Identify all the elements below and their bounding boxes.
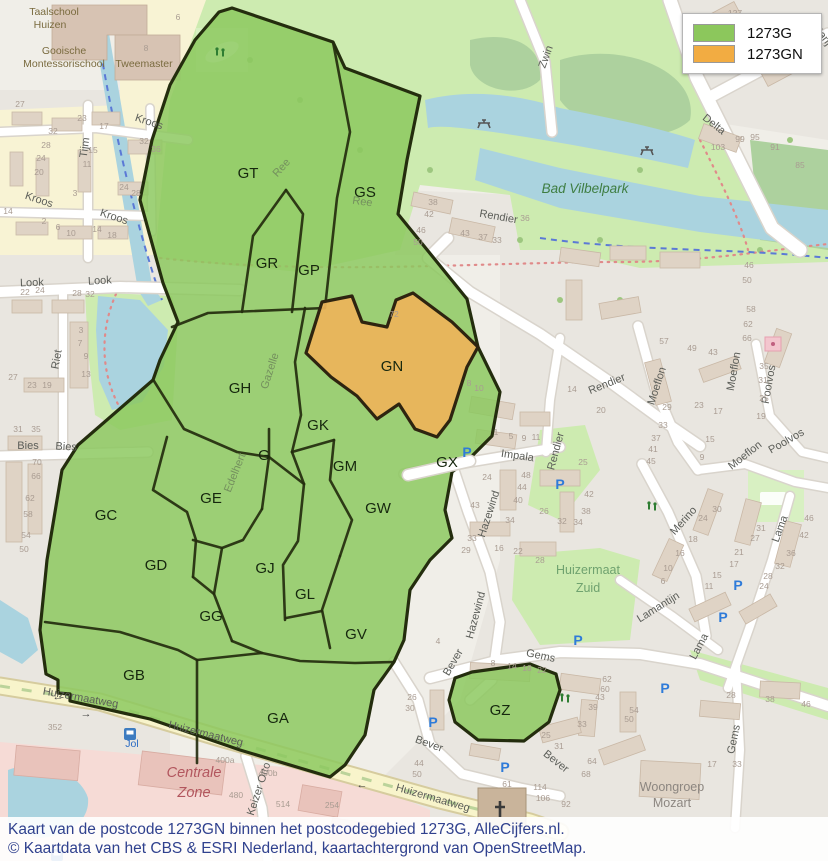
region-label-gh: GH xyxy=(229,380,252,397)
house-number: 9 xyxy=(700,452,705,462)
house-number: 14 xyxy=(567,384,577,394)
house-number: 23 xyxy=(27,380,37,390)
house-number: 28 xyxy=(535,555,545,565)
house-number: 16 xyxy=(494,543,504,553)
house-number: 114 xyxy=(533,782,547,792)
house-number: 22 xyxy=(537,665,547,675)
street-label: Bies xyxy=(17,440,39,452)
house-number: 32 xyxy=(85,289,95,299)
house-number: 33 xyxy=(577,719,587,729)
arrow-left-icon: ← xyxy=(53,691,64,703)
house-number: 39 xyxy=(588,702,598,712)
house-number: 514 xyxy=(276,799,290,809)
street-label: Huizermaat xyxy=(556,563,620,577)
street-label: Montessorischool xyxy=(23,58,105,70)
house-number: 58 xyxy=(746,304,756,314)
street-label: Woongroep xyxy=(640,780,704,794)
house-number: 10 xyxy=(663,563,673,573)
house-number: 29 xyxy=(662,402,672,412)
house-number: 99 xyxy=(735,134,745,144)
caption-line-2: © Kaartdata van het CBS & ESRI Nederland… xyxy=(8,839,820,858)
house-number: 7 xyxy=(78,338,83,348)
house-number: 46 xyxy=(744,260,754,270)
house-number: 254 xyxy=(325,800,339,810)
house-number: 11 xyxy=(705,581,714,591)
house-number: 4 xyxy=(436,636,441,646)
house-number: 92 xyxy=(561,799,571,809)
house-number: 54 xyxy=(21,530,31,540)
region-label-gd: GD xyxy=(145,557,168,574)
house-number: 50 xyxy=(413,237,423,247)
svg-text:→: → xyxy=(81,708,92,720)
house-number: 103 xyxy=(711,142,725,152)
house-number: 16 xyxy=(675,548,685,558)
house-number: 27 xyxy=(8,372,18,382)
street-label: Centrale xyxy=(167,765,222,781)
house-number: 480 xyxy=(229,790,243,800)
house-number: 57 xyxy=(659,336,669,346)
house-number: 50 xyxy=(412,769,422,779)
house-number: 38 xyxy=(765,694,775,704)
house-number: 91 xyxy=(770,142,780,152)
house-number: 34 xyxy=(573,517,583,527)
region-label-gn: GN xyxy=(381,358,404,375)
house-number: 28 xyxy=(131,188,141,198)
street-label: Taalschool xyxy=(29,6,79,18)
house-number: 66 xyxy=(31,471,41,481)
house-number: 27 xyxy=(15,99,25,109)
house-number: 34 xyxy=(505,515,515,525)
region-label-ga: GA xyxy=(267,710,289,727)
region-label-gc: GC xyxy=(95,507,118,524)
house-number: 9 xyxy=(522,433,527,443)
region-label-ge: GE xyxy=(200,490,222,507)
house-number: 58 xyxy=(23,509,33,519)
house-number: 27 xyxy=(750,533,760,543)
house-number: 18 xyxy=(107,230,117,240)
svg-text:←: ← xyxy=(357,779,368,791)
house-number: 31 xyxy=(756,523,766,533)
house-number: 352 xyxy=(48,722,62,732)
house-number: 42 xyxy=(584,489,594,499)
parking-icon: P xyxy=(428,714,437,730)
house-number: 23 xyxy=(694,400,704,410)
house-number: 15 xyxy=(705,434,715,444)
house-number: 28 xyxy=(41,140,51,150)
house-number: 62 xyxy=(602,674,612,684)
house-number: 8 xyxy=(491,658,496,668)
house-number: 24 xyxy=(698,513,708,523)
house-number: 44 xyxy=(517,482,527,492)
parking-icon: P xyxy=(555,476,564,492)
house-number: 46 xyxy=(801,699,811,709)
house-number: 43 xyxy=(708,347,718,357)
house-number: 25 xyxy=(541,730,551,740)
legend-row-1273gn: 1273GN xyxy=(693,45,811,63)
caption-line-1: Kaart van de postcode 1273GN binnen het … xyxy=(8,820,820,839)
region-label-gv: GV xyxy=(345,626,367,643)
house-number: 70 xyxy=(32,457,42,467)
house-number: 30 xyxy=(712,504,722,514)
street-label: Gooische xyxy=(42,45,87,57)
house-number: 21 xyxy=(734,547,744,557)
legend-row-1273g: 1273G xyxy=(693,24,811,42)
house-number: 33 xyxy=(492,235,502,245)
street-label: Mozart xyxy=(653,796,692,810)
house-number: 24 xyxy=(759,581,769,591)
region-label-gw: GW xyxy=(365,500,392,517)
house-number: 33 xyxy=(658,420,668,430)
house-number: 10 xyxy=(66,228,76,238)
street-label: Huizen xyxy=(34,19,67,31)
house-number: 66 xyxy=(742,333,752,343)
region-label-gt: GT xyxy=(238,165,259,182)
house-number: 32 xyxy=(557,516,567,526)
house-number: 35 xyxy=(31,424,41,434)
house-number: 42 xyxy=(799,530,809,540)
house-number: 9 xyxy=(84,351,89,361)
house-number: 46 xyxy=(804,513,814,523)
house-number: 22 xyxy=(513,546,523,556)
sports-court xyxy=(760,492,786,505)
parking-icon: P xyxy=(733,577,742,593)
house-number: 31 xyxy=(554,741,564,751)
house-number: 32 xyxy=(48,126,58,136)
street-label: Tweemaster xyxy=(115,58,173,70)
house-number: 85 xyxy=(795,160,805,170)
arrow-right-icon: → xyxy=(81,708,92,720)
caption: Kaart van de postcode 1273GN binnen het … xyxy=(0,817,828,861)
house-number: 14 xyxy=(507,661,517,671)
house-number: 36 xyxy=(786,548,796,558)
house-number: 50 xyxy=(19,544,29,554)
legend-label-1273g: 1273G xyxy=(747,25,811,42)
region-label-gj: GJ xyxy=(255,560,274,577)
house-number: 68 xyxy=(581,769,591,779)
house-number: 24 xyxy=(482,472,492,482)
house-number: 41 xyxy=(648,444,658,454)
house-number: 61 xyxy=(502,779,512,789)
house-number: 25 xyxy=(578,457,588,467)
house-number: 37 xyxy=(651,433,661,443)
house-number: 33 xyxy=(467,533,477,543)
house-number: 36 xyxy=(520,213,530,223)
house-number: 23 xyxy=(77,113,87,123)
house-number: 20 xyxy=(596,405,606,415)
house-number: 48 xyxy=(521,470,531,480)
house-number: 15 xyxy=(88,145,98,155)
bus-stop-icon xyxy=(124,728,136,740)
map-screenshot: KroosKroosKroosTijmLookLookRietBiesBiesZ… xyxy=(0,0,828,861)
region-label-gl: GL xyxy=(295,586,315,603)
house-number: 50 xyxy=(624,714,634,724)
house-number: 22 xyxy=(20,287,30,297)
house-number: 13 xyxy=(81,369,91,379)
house-number: 64 xyxy=(587,756,597,766)
house-number: 11 xyxy=(83,159,92,169)
house-number: 28 xyxy=(763,571,773,581)
street-label: Bad Vilbelpark xyxy=(542,181,630,196)
house-number: 35 xyxy=(759,361,769,371)
house-number: 44 xyxy=(414,758,424,768)
house-number: 19 xyxy=(756,411,766,421)
house-number: 8 xyxy=(144,43,149,53)
house-number: 17 xyxy=(713,406,723,416)
house-number: 3 xyxy=(73,188,78,198)
house-number: 25 xyxy=(759,393,769,403)
house-number: 31 xyxy=(13,424,23,434)
house-number: 17 xyxy=(729,559,739,569)
parking-icon: P xyxy=(660,680,669,696)
region-label-gx: GX xyxy=(436,454,458,471)
house-number: 31 xyxy=(758,375,768,385)
house-number: 43 xyxy=(470,500,480,510)
house-number: 49 xyxy=(687,343,697,353)
house-number: 37 xyxy=(478,232,488,242)
house-number: 38 xyxy=(428,197,438,207)
parking-icon: P xyxy=(573,632,582,648)
house-number: 40 xyxy=(513,495,523,505)
legend-swatch-1273g xyxy=(693,24,735,42)
house-number: 17 xyxy=(707,759,717,769)
region-label-g: G xyxy=(258,447,270,464)
region-label-gr: GR xyxy=(256,255,279,272)
house-number: 45 xyxy=(646,456,656,466)
region-label-gg: GG xyxy=(199,608,222,625)
region-label-gs: GS xyxy=(354,184,376,201)
house-number: 33 xyxy=(732,759,742,769)
house-number: 50 xyxy=(742,275,752,285)
house-number: 36 xyxy=(151,144,161,154)
house-number: 18 xyxy=(522,663,532,673)
house-number: 29 xyxy=(461,545,471,555)
house-number: 1 xyxy=(494,427,499,437)
svg-text:←: ← xyxy=(53,691,64,703)
house-number: 14 xyxy=(92,224,102,234)
house-number: 6 xyxy=(661,576,666,586)
house-number: 18 xyxy=(688,534,698,544)
arrow-left-icon: ← xyxy=(357,779,368,791)
house-number: 24 xyxy=(35,285,45,295)
region-label-gp: GP xyxy=(298,262,320,279)
legend-label-1273gn: 1273GN xyxy=(747,46,811,63)
house-number: 6 xyxy=(176,12,181,22)
house-number: 62 xyxy=(743,319,753,329)
house-number: 60 xyxy=(600,684,610,694)
playground-pink-icon xyxy=(765,337,781,351)
house-number: 38 xyxy=(581,506,591,516)
street-label: Zuid xyxy=(576,581,600,595)
parking-icon: P xyxy=(718,609,727,625)
region-label-gm: GM xyxy=(333,458,357,475)
house-number: 24 xyxy=(36,153,46,163)
legend: 1273G 1273GN xyxy=(682,13,822,74)
map-canvas[interactable]: KroosKroosKroosTijmLookLookRietBiesBiesZ… xyxy=(0,0,828,861)
house-number: 19 xyxy=(42,380,52,390)
house-number: 11 xyxy=(532,432,541,442)
house-number: 32 xyxy=(139,136,149,146)
house-number: 24 xyxy=(119,182,129,192)
house-number: 26 xyxy=(407,692,417,702)
house-number: 26 xyxy=(539,506,549,516)
region-label-gb: GB xyxy=(123,667,145,684)
house-number: 5 xyxy=(509,431,514,441)
house-number: 32 xyxy=(775,561,785,571)
house-number: 28 xyxy=(726,690,736,700)
house-number: 72 xyxy=(389,309,399,319)
house-number: 28 xyxy=(72,288,82,298)
house-number: 3 xyxy=(79,325,84,335)
region-label-gz: GZ xyxy=(490,702,511,719)
street-label: Look xyxy=(88,274,113,287)
house-number: 42 xyxy=(424,209,434,219)
house-number: 6 xyxy=(56,222,61,232)
house-number: 14 xyxy=(3,206,13,216)
region-label-gk: GK xyxy=(307,417,329,434)
house-number: 17 xyxy=(99,121,109,131)
house-number: 46 xyxy=(416,225,426,235)
house-number: 106 xyxy=(536,793,550,803)
house-number: 15 xyxy=(712,570,722,580)
legend-swatch-1273gn xyxy=(693,45,735,63)
house-number: 95 xyxy=(750,132,760,142)
house-number: 400b xyxy=(259,768,278,778)
house-number: 62 xyxy=(25,493,35,503)
house-number: 2 xyxy=(42,216,47,226)
house-number: 30 xyxy=(405,703,415,713)
house-number: 10 xyxy=(474,383,484,393)
street-label: Bies xyxy=(55,440,77,453)
house-number: 400a xyxy=(216,755,235,765)
house-number: 8 xyxy=(467,378,472,388)
house-number: 43 xyxy=(460,228,470,238)
parking-icon: P xyxy=(462,444,471,460)
street-label: Zone xyxy=(176,785,210,801)
house-number: 20 xyxy=(34,167,44,177)
parking-icon: P xyxy=(500,759,509,775)
